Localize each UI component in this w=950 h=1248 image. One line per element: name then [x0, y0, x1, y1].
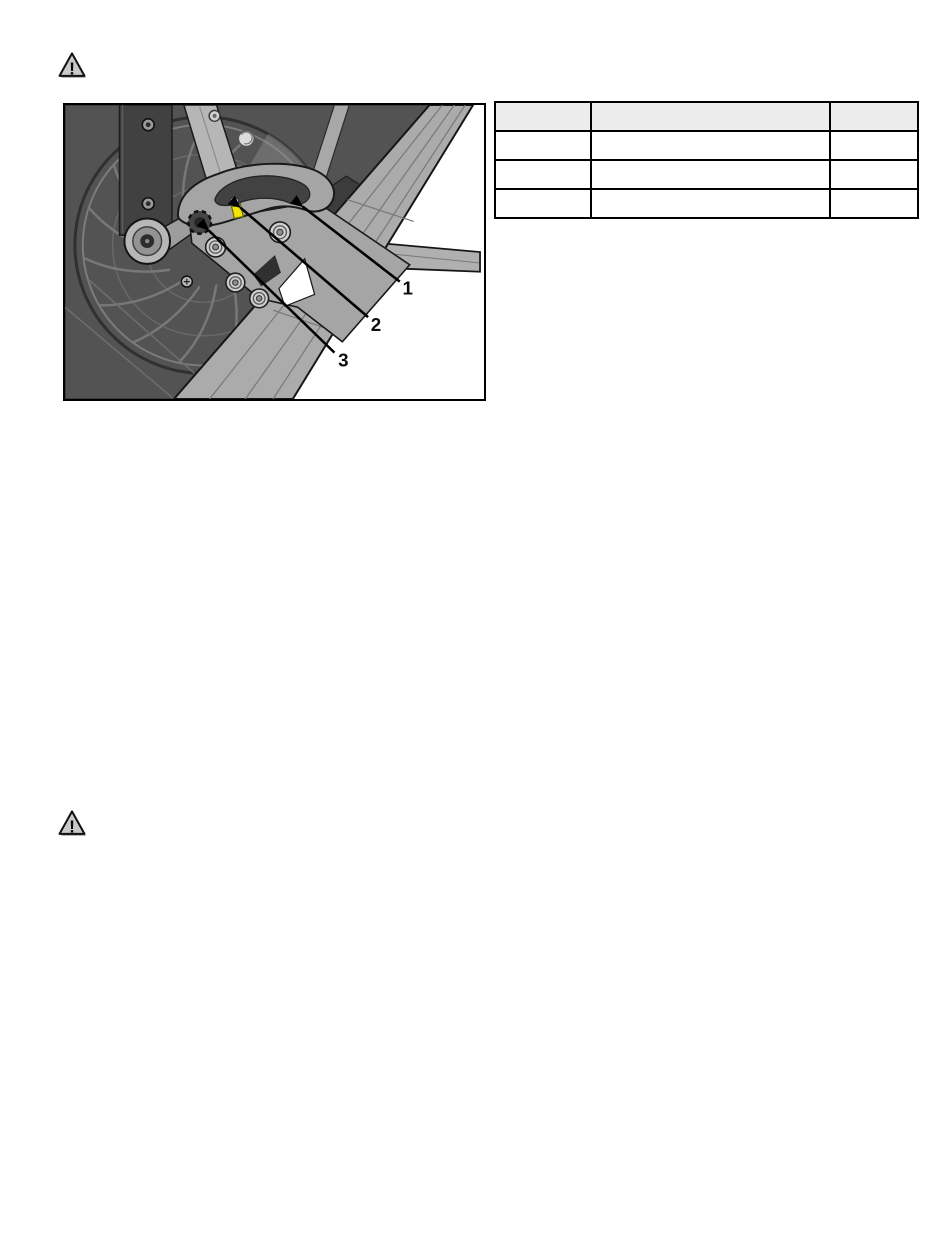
table-header-cell	[495, 102, 591, 131]
parts-table	[494, 101, 919, 219]
table-header-cell	[591, 102, 830, 131]
table-row	[495, 131, 918, 160]
warning-triangle-icon: !	[57, 51, 87, 80]
warning-exclamation: !	[69, 817, 75, 837]
table-cell	[495, 131, 591, 160]
table-cell	[830, 131, 918, 160]
table-cell	[591, 189, 830, 218]
table-row	[495, 160, 918, 189]
pivot-dashed-circle	[188, 211, 211, 234]
table-cell	[495, 160, 591, 189]
table-header-cell	[830, 102, 918, 131]
warning-triangle-icon: !	[57, 809, 87, 838]
table-cell	[830, 160, 918, 189]
warning-exclamation: !	[69, 59, 75, 79]
callout-label-3: 3	[338, 349, 348, 370]
table-cell	[495, 189, 591, 218]
table-row	[495, 189, 918, 218]
table-cell	[830, 189, 918, 218]
table-cell	[591, 131, 830, 160]
document-page: !	[0, 0, 950, 1248]
callout-label-2: 2	[371, 314, 381, 335]
table-header-row	[495, 102, 918, 131]
table-cell	[591, 160, 830, 189]
frame-upright	[119, 105, 171, 235]
callout-label-1: 1	[402, 277, 412, 298]
mechanism-figure: 1 2 3	[63, 103, 486, 401]
